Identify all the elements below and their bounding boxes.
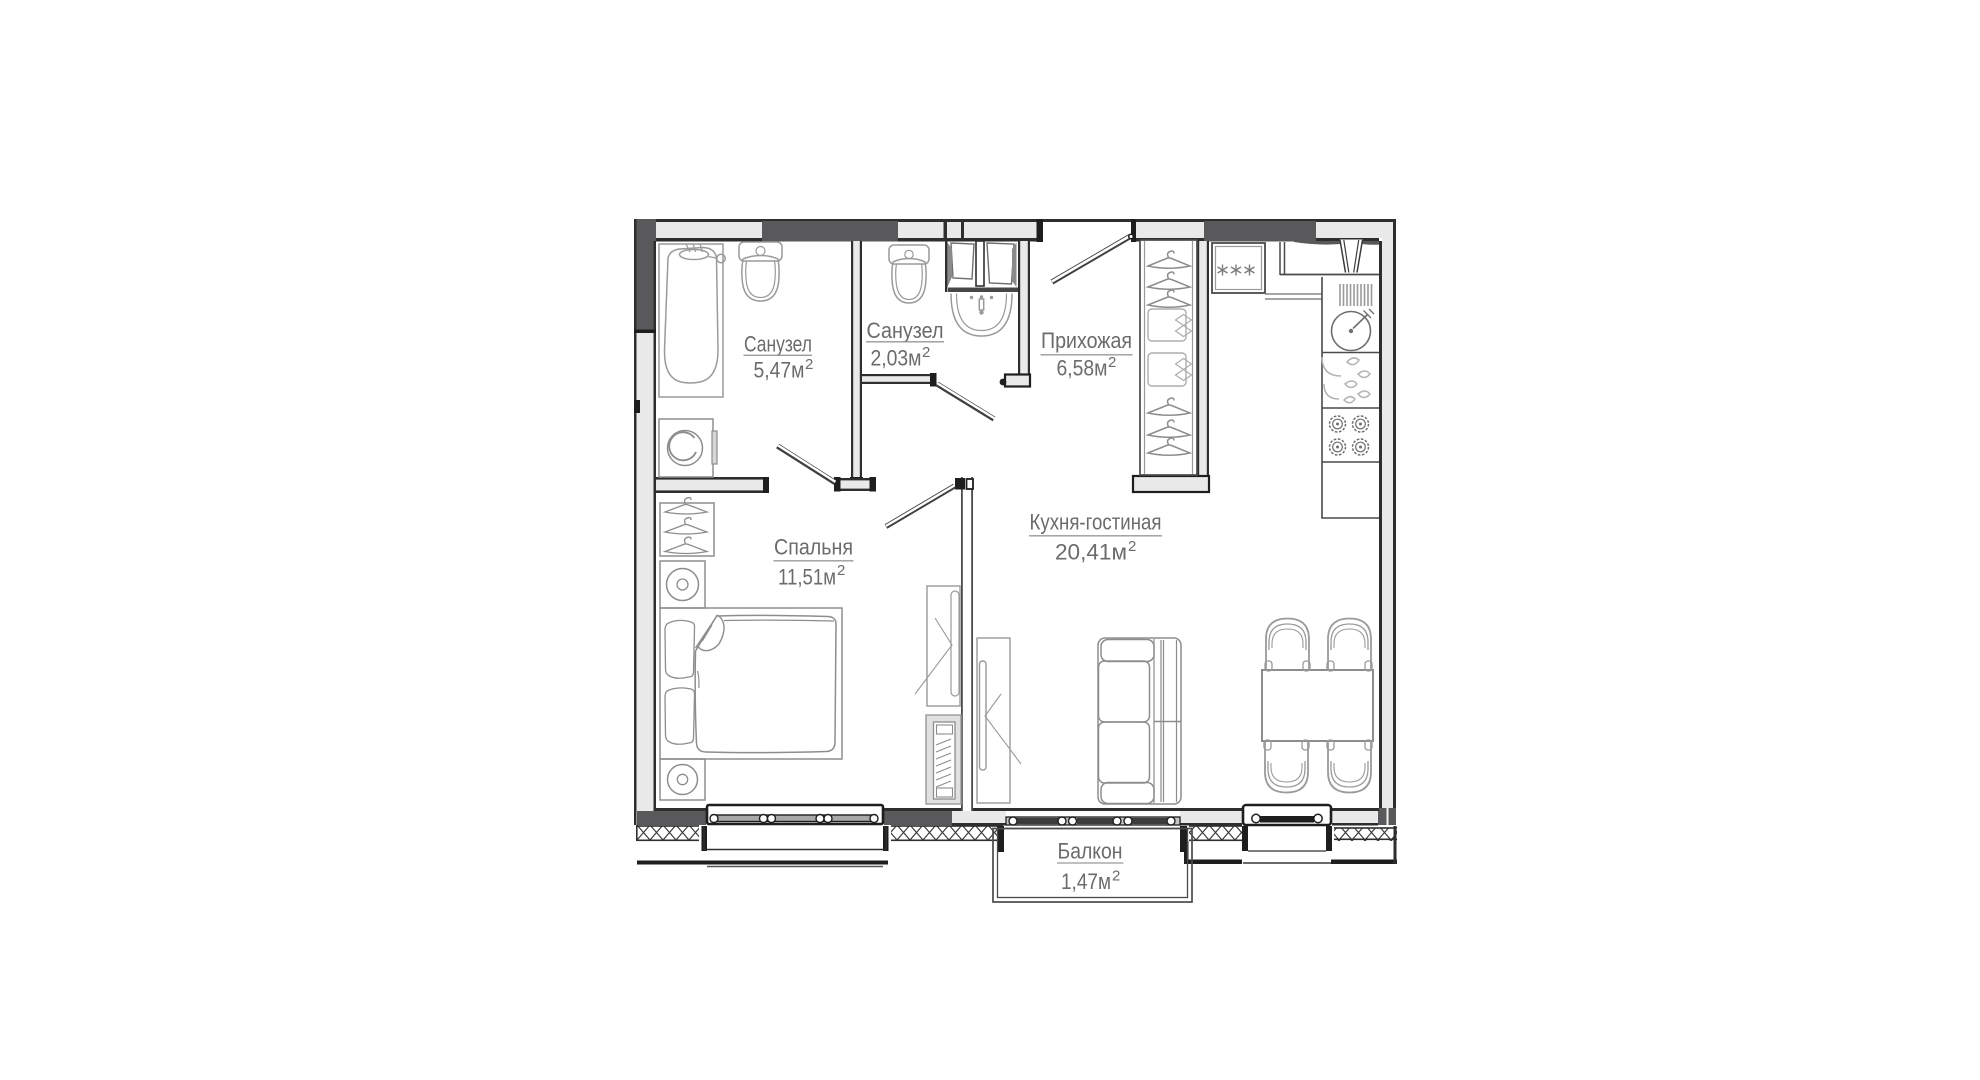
svg-text:5,47м: 5,47м — [754, 358, 805, 383]
svg-text:2: 2 — [805, 356, 813, 373]
svg-text:20,41м: 20,41м — [1055, 540, 1127, 565]
svg-text:1,47м: 1,47м — [1061, 869, 1111, 894]
svg-text:Санузел: Санузел — [744, 332, 812, 357]
svg-text:2: 2 — [1128, 538, 1136, 555]
svg-text:6,58м: 6,58м — [1057, 356, 1108, 381]
svg-text:Санузел: Санузел — [867, 318, 944, 343]
svg-text:11,51м: 11,51м — [778, 565, 836, 590]
svg-text:2: 2 — [1112, 868, 1120, 885]
svg-text:Кухня-гостиная: Кухня-гостиная — [1030, 510, 1162, 535]
svg-text:2: 2 — [1108, 354, 1116, 371]
svg-text:2,03м: 2,03м — [871, 346, 922, 371]
svg-text:Балкон: Балкон — [1058, 839, 1123, 864]
svg-text:Прихожая: Прихожая — [1041, 328, 1132, 353]
svg-text:Спальня: Спальня — [774, 535, 853, 560]
svg-text:2: 2 — [922, 344, 930, 361]
svg-text:2: 2 — [837, 562, 845, 579]
